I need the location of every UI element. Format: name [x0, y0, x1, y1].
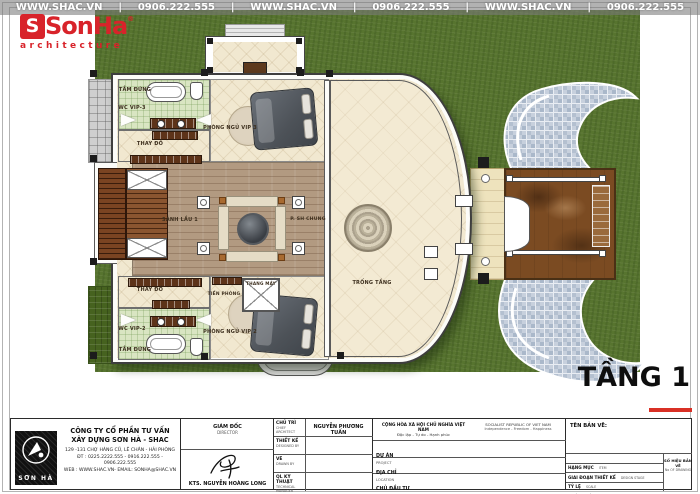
- director-title-en: DIRECTOR: [181, 430, 274, 435]
- company-logo-box: SƠN HÀ: [15, 431, 57, 485]
- project-row-vi: CHỦ ĐẦU TƯ: [376, 487, 410, 492]
- sonha-emblem-icon: [15, 431, 57, 471]
- brand-tagline: architecture: [20, 41, 134, 51]
- company-name-line1: CÔNG TY CỔ PHẦN TƯ VẤN: [61, 427, 179, 436]
- director-signature-icon: [205, 451, 251, 479]
- company-cell: SƠN HÀ CÔNG TY CỔ PHẦN TƯ VẤN XÂY DỰNG S…: [11, 419, 181, 489]
- role-label-en: DESIGNED BY: [276, 444, 306, 448]
- brand-logo: S SonHa ® architecture: [20, 14, 134, 51]
- watermark-separator: |: [353, 2, 357, 13]
- watermark-site: WWW.SHAC.VN: [485, 2, 572, 13]
- national-motto-vi2: Độc lập - Tự do - Hạnh phúc: [376, 432, 471, 437]
- role-label-en: DRAWN BY: [276, 462, 306, 466]
- floor-title: TẦNG 1: [530, 362, 690, 393]
- director-cell: GIÁM ĐỐC DIRECTOR KTS. NGUYỄN HOÀNG LONG: [181, 419, 274, 489]
- drawing-cell: TÊN BẢN VẼ: HẠNG MỤC ITEM GIAI ĐOẠN THIẾ…: [566, 419, 692, 489]
- drawing-number-label-en: No OF DRAWING: [664, 468, 692, 472]
- watermark-phone: 0906.222.555: [138, 2, 215, 13]
- floor-title-underline: [649, 408, 692, 412]
- role-value: NGUYỄN PHƯƠNG TUẤN: [306, 424, 371, 436]
- watermark-site: WWW.SHAC.VN: [250, 2, 337, 13]
- company-address: 129 -131 CHỢ HÀNG CŨ, LÊ CHÂN - HẢI PHÒN…: [61, 448, 179, 455]
- company-web: WEB : WWW.SHAC.VN- EMAIL: SONHA@SHAC.VN: [61, 468, 179, 475]
- watermark-separator: |: [465, 2, 469, 13]
- role-label-en: TECHNICAL MANAGER: [276, 485, 306, 493]
- company-phone: ĐT : 0225.2222.555 - 0916.222.555 - 0906…: [61, 455, 179, 468]
- sonha-logo-icon: S: [20, 14, 45, 39]
- roles-cell: CHỦ TRÌ CHIEF ARCHITECT NGUYỄN PHƯƠNG TU…: [274, 419, 373, 489]
- watermark-phone: 0906.222.555: [372, 2, 449, 13]
- national-project-cell: CỘNG HÒA XÃ HỘI CHỦ NGHĨA VIỆT NAM Độc l…: [373, 419, 566, 489]
- drawing-title-label: TÊN BẢN VẼ:: [570, 423, 607, 429]
- title-block: SƠN HÀ CÔNG TY CỔ PHẦN TƯ VẤN XÂY DỰNG S…: [10, 418, 692, 490]
- role-label-vi: QL KỸ THUẬT: [276, 475, 306, 485]
- national-motto-vi1: CỘNG HÒA XÃ HỘI CHỦ NGHĨA VIỆT NAM: [376, 422, 471, 432]
- watermark-separator: |: [587, 2, 591, 13]
- watermark-separator: |: [231, 2, 235, 13]
- brand-name: SonHa: [45, 14, 127, 39]
- drawing-number-label-vi: SỐ HIỆU BẢN VẼ: [664, 458, 692, 468]
- drawing-row-en: DESIGN STAGE: [621, 476, 645, 480]
- company-name-line2: XÂY DỰNG SƠN HÀ - SHAC: [61, 436, 179, 445]
- company-logo-text: SƠN HÀ: [15, 475, 57, 482]
- role-label-en: CHIEF ARCHITECT: [276, 426, 306, 434]
- registered-mark: ®: [127, 14, 134, 24]
- national-motto-en2: Independence - Freedom - Happiness: [473, 427, 563, 431]
- director-name: KTS. NGUYỄN HOÀNG LONG: [181, 481, 274, 487]
- watermark-phone: 0906.222.555: [607, 2, 684, 13]
- blueprint-page: { "brand": {"name": "SonHa", "initial": …: [0, 0, 700, 494]
